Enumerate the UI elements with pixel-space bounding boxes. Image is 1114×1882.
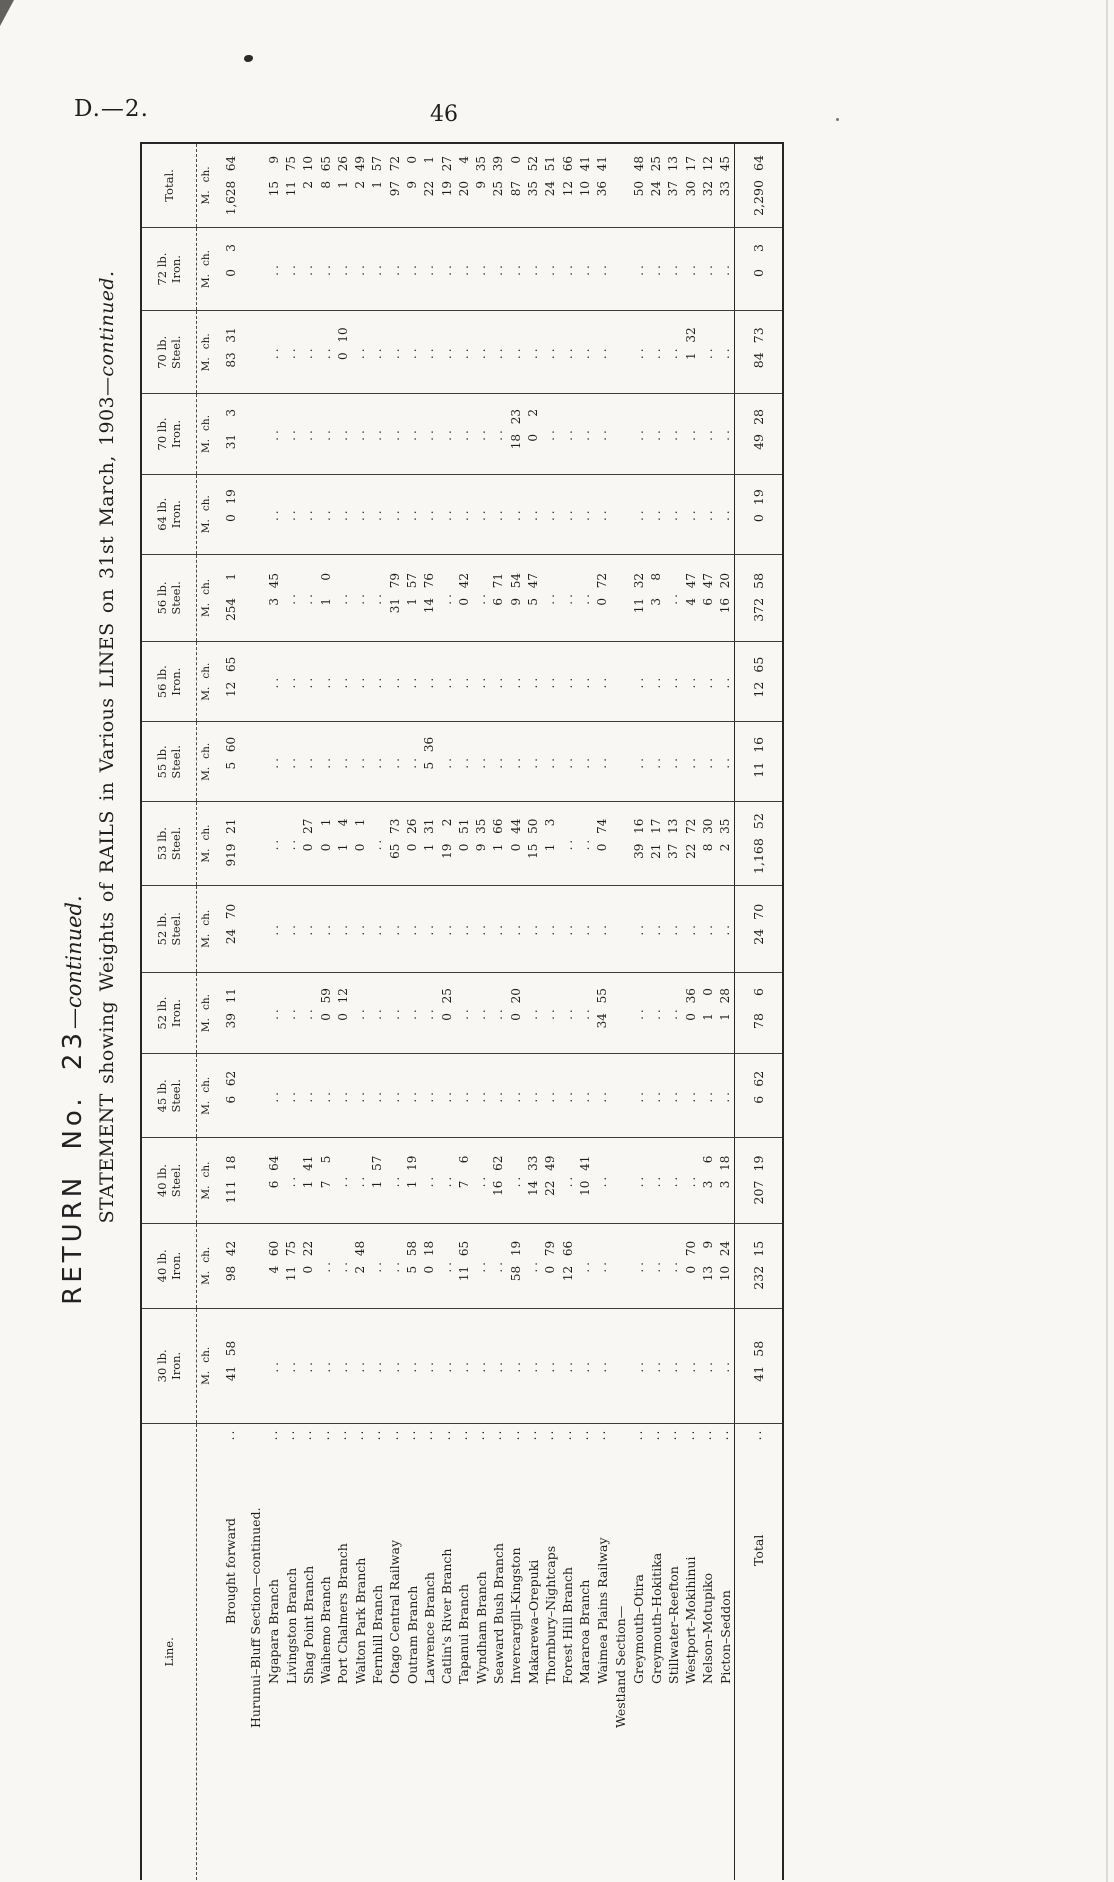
scan-corner-artifact bbox=[0, 0, 14, 26]
dot-leader: .. bbox=[577, 1429, 591, 1441]
mileage-value: 044 bbox=[509, 819, 523, 869]
weight-value-cell: .. bbox=[717, 885, 735, 972]
total-value-cell: 204 bbox=[455, 143, 472, 227]
chains-value: 76 bbox=[422, 573, 436, 589]
chains-value: 71 bbox=[491, 573, 505, 589]
miles-value: 0 bbox=[405, 844, 419, 869]
mileage-value: .. bbox=[353, 922, 367, 936]
mileage-value: .. bbox=[474, 1259, 488, 1273]
mileage-value: .. bbox=[666, 591, 680, 605]
weight-value-cell: .. bbox=[665, 642, 682, 722]
weight-value-cell: .. bbox=[403, 1308, 420, 1423]
miles-value: 1 bbox=[405, 598, 419, 623]
return-title: RETURN No. 23—continued. bbox=[58, 800, 100, 1400]
weight-value-cell: 1265 bbox=[215, 642, 246, 722]
mileage-value: .. bbox=[666, 675, 680, 689]
miles-value: 24 bbox=[224, 929, 238, 954]
line-name: Fernhill Branch bbox=[370, 1585, 385, 1684]
weight-value-cell: 2249 bbox=[542, 1138, 559, 1223]
chains-value: 65 bbox=[457, 1241, 471, 1257]
units-label: M.ch. bbox=[200, 1247, 212, 1285]
mileage-value: .. bbox=[336, 755, 350, 769]
weight-value-cell: 079 bbox=[542, 1223, 559, 1308]
miles-value: 25 bbox=[491, 181, 505, 215]
mileage-value: .. bbox=[336, 427, 350, 441]
weight-value-cell: 14 bbox=[334, 802, 351, 885]
weight-value-cell: .. bbox=[665, 394, 682, 474]
mileage-value: .. bbox=[301, 755, 315, 769]
mileage-value: .. bbox=[457, 427, 471, 441]
weight-value-cell: 027 bbox=[300, 802, 317, 885]
weight-value-cell: .. bbox=[438, 885, 455, 972]
total-value-cell: 2451 bbox=[542, 143, 559, 227]
chains-value: 0 bbox=[319, 573, 333, 589]
weight-value-cell: .. bbox=[542, 474, 559, 554]
chains-value: 72 bbox=[684, 819, 698, 835]
chains-value: 55 bbox=[595, 988, 609, 1004]
weight-value-cell: 547 bbox=[524, 554, 541, 641]
weight-value-cell: .. bbox=[699, 227, 716, 310]
material-label: Steel. bbox=[169, 311, 183, 393]
weight-value-cell: .. bbox=[542, 642, 559, 722]
mileage-value: .. bbox=[649, 675, 663, 689]
material-label: Iron. bbox=[169, 1309, 183, 1423]
miles-value: 31 bbox=[224, 434, 238, 459]
mileage-value: 1550 bbox=[526, 819, 540, 869]
weight-value-cell: 026 bbox=[403, 802, 420, 885]
empty-cell bbox=[246, 722, 265, 802]
mileage-value: .. bbox=[509, 507, 523, 521]
empty-cell bbox=[246, 394, 265, 474]
units-label: M.ch. bbox=[200, 1347, 212, 1385]
weight-value-cell: 3455 bbox=[594, 972, 611, 1053]
weight-value-cell: .. bbox=[421, 885, 438, 972]
chains-value: 47 bbox=[684, 573, 698, 589]
weight-value-cell: 128 bbox=[717, 972, 735, 1053]
weight-value-cell: .. bbox=[473, 722, 490, 802]
miles-value: 3 bbox=[701, 1181, 715, 1206]
total-value-cell: 1266 bbox=[559, 143, 576, 227]
chains-value: 47 bbox=[526, 573, 540, 589]
chains-value: 18 bbox=[224, 1156, 238, 1172]
mileage-value: .. bbox=[561, 1174, 575, 1188]
mileage-value: 3552 bbox=[526, 156, 540, 215]
mileage-value: 954 bbox=[509, 573, 523, 623]
weight-value-cell: .. bbox=[647, 1223, 664, 1308]
rails-table-rotated-block: Line.30 lb.Iron.40 lb.Iron.40 lb.Steel.4… bbox=[140, 142, 784, 1880]
chains-value: 59 bbox=[319, 988, 333, 1004]
weight-value-cell: .. bbox=[524, 1308, 541, 1423]
weight-value-cell: .. bbox=[576, 972, 593, 1053]
weight-value-cell: .. bbox=[507, 1138, 524, 1223]
unit-miles: M. bbox=[200, 849, 212, 863]
weight-value-cell: 345 bbox=[265, 554, 282, 641]
chains-value: 16 bbox=[632, 819, 646, 835]
weight-value-cell: .. bbox=[282, 394, 299, 474]
weight-value-cell: .. bbox=[490, 1223, 507, 1308]
weight-value-cell: .. bbox=[490, 227, 507, 310]
weight-value-cell: 166 bbox=[490, 802, 507, 885]
mileage-value: .. bbox=[649, 345, 663, 359]
miles-value: 1,168 bbox=[751, 838, 766, 874]
weight-value-cell: 786 bbox=[734, 972, 783, 1053]
mileage-value: 3017 bbox=[684, 156, 698, 215]
weight-value-cell: .. bbox=[317, 722, 334, 802]
mileage-value: .. bbox=[301, 591, 315, 605]
mileage-value: .. bbox=[595, 1259, 609, 1273]
weight-value-cell: .. bbox=[665, 1308, 682, 1423]
miles-value: 2 bbox=[353, 1266, 367, 1291]
units-cell: M.ch. bbox=[197, 642, 216, 722]
mileage-value: .. bbox=[632, 427, 646, 441]
mileage-value: .. bbox=[301, 427, 315, 441]
mileage-value: .. bbox=[353, 1006, 367, 1020]
mileage-value: .. bbox=[284, 591, 298, 605]
mileage-value: .. bbox=[649, 755, 663, 769]
mileage-value: .. bbox=[370, 755, 384, 769]
line-name-cell: Stillwater–Reefton.. bbox=[665, 1423, 682, 1880]
weight-value-cell: 4928 bbox=[734, 394, 783, 474]
mileage-value: 036 bbox=[684, 988, 698, 1038]
weight-column-header: 30 lb.Iron. bbox=[141, 1308, 197, 1423]
miles-value: 19 bbox=[440, 844, 454, 869]
weight-value-cell: .. bbox=[438, 394, 455, 474]
weight-value-cell: 536 bbox=[421, 722, 438, 802]
scanned-document-page: { "page": { "doc_ref": "D.—2.", "page_nu… bbox=[0, 0, 1114, 1882]
table-row: Ngapara Branch....460664............345.… bbox=[265, 143, 282, 1880]
dot-leader: .. bbox=[421, 1429, 435, 1441]
mileage-value: .. bbox=[526, 1006, 540, 1020]
mileage-value: 3713 bbox=[666, 819, 680, 869]
mileage-value: 248 bbox=[353, 1241, 367, 1291]
mileage-value: 01 bbox=[353, 819, 367, 869]
miles-value: 3 bbox=[267, 598, 281, 623]
units-cell: M.ch. bbox=[197, 1054, 216, 1138]
mileage-value: .. bbox=[684, 1089, 698, 1103]
line-name: Livingston Branch bbox=[284, 1568, 299, 1684]
empty-cell bbox=[246, 1138, 265, 1223]
mileage-value: .. bbox=[370, 1006, 384, 1020]
units-label: M.ch. bbox=[200, 333, 212, 371]
return-title-main: RETURN No. 23 bbox=[58, 1029, 88, 1305]
weight-value-cell: .. bbox=[421, 311, 438, 394]
units-label: M.ch. bbox=[200, 1077, 212, 1115]
mileage-value: .. bbox=[632, 675, 646, 689]
mileage-value: .. bbox=[491, 507, 505, 521]
chains-value: 18 bbox=[718, 1156, 732, 1172]
chains-value: 65 bbox=[319, 156, 333, 172]
weight-label: 55 lb. bbox=[155, 722, 169, 801]
weight-value-cell: .. bbox=[647, 885, 664, 972]
mileage-value: .. bbox=[370, 837, 384, 851]
miles-value: 0 bbox=[595, 598, 609, 623]
line-name: Ngapara Branch bbox=[266, 1579, 281, 1684]
mileage-value: .. bbox=[440, 922, 454, 936]
weight-value-cell: 235 bbox=[717, 802, 735, 885]
chains-value: 36 bbox=[422, 737, 436, 753]
mileage-value: .. bbox=[267, 262, 281, 276]
document-reference: D.—2. bbox=[74, 96, 149, 122]
chains-value: 64 bbox=[224, 156, 238, 172]
mileage-value: .. bbox=[718, 755, 732, 769]
mileage-value: .. bbox=[509, 1174, 523, 1188]
mileage-value: 03 bbox=[224, 244, 238, 294]
mileage-value: 547 bbox=[526, 573, 540, 623]
weight-value-cell: 02 bbox=[524, 394, 541, 474]
weight-value-cell: .. bbox=[403, 474, 420, 554]
chains-value: 0 bbox=[509, 156, 523, 172]
empty-cell bbox=[246, 311, 265, 394]
dot-leader: .. bbox=[266, 1429, 280, 1441]
mileage-value: .. bbox=[440, 427, 454, 441]
weight-value-cell: .. bbox=[403, 1054, 420, 1138]
weight-value-cell: .. bbox=[438, 1138, 455, 1223]
weight-label: 40 lb. bbox=[155, 1224, 169, 1308]
weight-value-cell: .. bbox=[386, 1054, 403, 1138]
dot-leader: .. bbox=[542, 1429, 556, 1441]
mileage-value: .. bbox=[578, 837, 592, 851]
weight-value-cell: 2470 bbox=[734, 885, 783, 972]
weight-value-cell: .. bbox=[369, 972, 386, 1053]
mileage-value: 1041 bbox=[578, 1156, 592, 1206]
weight-value-cell: .. bbox=[265, 1308, 282, 1423]
chains-value: 41 bbox=[578, 1156, 592, 1172]
mileage-value: .. bbox=[595, 1174, 609, 1188]
miles-value: 1 bbox=[319, 598, 333, 623]
weight-value-cell: 1550 bbox=[524, 802, 541, 885]
mileage-value: .. bbox=[632, 262, 646, 276]
weight-value-cell: .. bbox=[369, 474, 386, 554]
scan-speck-artifact bbox=[836, 118, 839, 121]
miles-value: 0 bbox=[457, 844, 471, 869]
chains-value: 60 bbox=[267, 1241, 281, 1257]
mileage-value: .. bbox=[422, 345, 436, 359]
weight-value-cell: .. bbox=[282, 227, 299, 310]
chains-value: 4 bbox=[457, 156, 471, 172]
mileage-value: .. bbox=[457, 922, 471, 936]
chains-value: 57 bbox=[405, 573, 419, 589]
weight-value-cell: 010 bbox=[334, 311, 351, 394]
mileage-value: .. bbox=[595, 427, 609, 441]
line-name-cell: Fernhill Branch.. bbox=[369, 1423, 386, 1880]
weight-value-cell: .. bbox=[665, 972, 682, 1053]
weight-value-cell: .. bbox=[699, 394, 716, 474]
units-blank-cell bbox=[197, 1423, 216, 1880]
weight-value-cell: .. bbox=[524, 642, 541, 722]
mileage-value: .. bbox=[701, 675, 715, 689]
mileage-value: .. bbox=[474, 675, 488, 689]
weight-value-cell: .. bbox=[699, 1308, 716, 1423]
miles-value: 12 bbox=[561, 181, 575, 215]
weight-value-cell: .. bbox=[594, 1054, 611, 1138]
chains-value: 12 bbox=[701, 156, 715, 172]
miles-value: 207 bbox=[751, 1181, 766, 1206]
mileage-value: .. bbox=[336, 1089, 350, 1103]
miles-value: 1 bbox=[422, 844, 436, 869]
mileage-value: 662 bbox=[224, 1071, 238, 1121]
chains-value: 70 bbox=[751, 904, 766, 920]
mileage-value: 1265 bbox=[224, 657, 238, 707]
table-row: Greymouth–Otira..............3916....113… bbox=[630, 143, 647, 1880]
weight-value-cell: 20719 bbox=[734, 1138, 783, 1223]
weight-value-cell: .. bbox=[265, 394, 282, 474]
empty-cell bbox=[611, 972, 630, 1053]
chains-value: 32 bbox=[632, 573, 646, 589]
mileage-value: .. bbox=[284, 262, 298, 276]
miles-value: 5 bbox=[224, 762, 238, 787]
material-label: Iron. bbox=[169, 1224, 183, 1308]
chains-value: 64 bbox=[751, 155, 766, 171]
weight-value-cell: 022 bbox=[300, 1223, 317, 1308]
weight-value-cell: .. bbox=[594, 474, 611, 554]
line-name-cell: Ngapara Branch.. bbox=[265, 1423, 282, 1880]
unit-chains: ch. bbox=[200, 250, 212, 266]
weight-value-cell: 1132 bbox=[630, 554, 647, 641]
miles-value: 32 bbox=[701, 181, 715, 215]
weight-value-cell: .. bbox=[559, 1308, 576, 1423]
mileage-value: 157 bbox=[370, 1156, 384, 1206]
weight-column-header: 40 lb.Iron. bbox=[141, 1223, 197, 1308]
chains-value: 49 bbox=[353, 156, 367, 172]
line-name: Port Chalmers Branch bbox=[335, 1543, 350, 1684]
mileage-value: 022 bbox=[301, 1241, 315, 1291]
miles-value: 111 bbox=[224, 1181, 238, 1206]
unit-chains: ch. bbox=[200, 825, 212, 841]
mileage-value: .. bbox=[405, 1089, 419, 1103]
mileage-value: .. bbox=[319, 345, 333, 359]
weight-value-cell: .. bbox=[455, 227, 472, 310]
mileage-value: 026 bbox=[405, 819, 419, 869]
mileage-value: .. bbox=[422, 262, 436, 276]
weight-value-cell: .. bbox=[594, 394, 611, 474]
chains-value: 58 bbox=[405, 1241, 419, 1257]
weight-value-cell: 647 bbox=[699, 554, 716, 641]
mileage-value: 1024 bbox=[718, 1241, 732, 1291]
mileage-value: .. bbox=[422, 675, 436, 689]
weight-value-cell: .. bbox=[403, 394, 420, 474]
weight-column-header: 64 lb.Iron. bbox=[141, 474, 197, 554]
line-name-cell: Walton Park Branch.. bbox=[352, 1423, 369, 1880]
mileage-value: .. bbox=[440, 1359, 454, 1373]
mileage-value: 1662 bbox=[491, 1156, 505, 1206]
weight-value-cell: 139 bbox=[699, 1223, 716, 1308]
total-value-cell: 3552 bbox=[524, 143, 541, 227]
line-name-cell: Mararoa Branch.. bbox=[576, 1423, 593, 1880]
miles-value: 6 bbox=[267, 1181, 281, 1206]
weight-value-cell: .. bbox=[524, 227, 541, 310]
miles-value: 21 bbox=[649, 844, 663, 869]
mileage-value: 051 bbox=[457, 819, 471, 869]
mileage-value: .. bbox=[491, 1089, 505, 1103]
mileage-value: .. bbox=[388, 1006, 402, 1020]
miles-value: 15 bbox=[526, 844, 540, 869]
weight-value-cell: 460 bbox=[265, 1223, 282, 1308]
mileage-value: .. bbox=[353, 755, 367, 769]
table-row: Thornbury–Nightcaps....0792249......13..… bbox=[542, 143, 559, 1880]
miles-value: 11 bbox=[632, 598, 646, 623]
mileage-value: 11118 bbox=[224, 1156, 238, 1206]
unit-miles: M. bbox=[200, 274, 212, 288]
weight-value-cell: 3911 bbox=[215, 972, 246, 1053]
miles-value: 1 bbox=[336, 181, 350, 215]
dot-leader: .. bbox=[438, 1429, 452, 1441]
weight-value-cell: .. bbox=[282, 1308, 299, 1423]
empty-cell bbox=[246, 885, 265, 972]
weight-value-cell: .. bbox=[386, 885, 403, 972]
mileage-value: .. bbox=[353, 427, 367, 441]
weight-value-cell: .. bbox=[265, 802, 282, 885]
weight-label: 40 lb. bbox=[155, 1138, 169, 1222]
weight-value-cell: .. bbox=[647, 1054, 664, 1138]
mileage-value: .. bbox=[491, 755, 505, 769]
mileage-value: 2470 bbox=[751, 904, 766, 954]
mileage-value: 2425 bbox=[649, 156, 663, 215]
miles-value: 1 bbox=[718, 1013, 732, 1038]
miles-value: 1,628 bbox=[224, 181, 238, 215]
total-value-cell: 157 bbox=[369, 143, 386, 227]
weight-value-cell: 01 bbox=[352, 802, 369, 885]
mileage-value: .. bbox=[526, 507, 540, 521]
mileage-value: .. bbox=[718, 1089, 732, 1103]
dot-leader: .. bbox=[352, 1429, 366, 1441]
line-name-cell: Makarewa–Orepuki.. bbox=[524, 1423, 541, 1880]
total-value-cell: 3345 bbox=[717, 143, 735, 227]
chains-value: 75 bbox=[284, 156, 298, 172]
unit-chains: ch. bbox=[200, 1247, 212, 1263]
weight-value-cell: .. bbox=[490, 474, 507, 554]
weight-value-cell: .. bbox=[682, 394, 699, 474]
chains-value: 70 bbox=[224, 904, 238, 920]
weight-value-cell: .. bbox=[630, 722, 647, 802]
weight-value-cell: .. bbox=[524, 311, 541, 394]
mileage-value: 204 bbox=[457, 156, 471, 215]
mileage-value: .. bbox=[457, 755, 471, 769]
weight-value-cell: .. bbox=[576, 885, 593, 972]
unit-chains: ch. bbox=[200, 743, 212, 759]
weight-value-cell: .. bbox=[473, 642, 490, 722]
mileage-value: 210 bbox=[301, 156, 315, 215]
chains-value: 35 bbox=[474, 156, 488, 172]
line-name-cell: Greymouth–Otira.. bbox=[630, 1423, 647, 1880]
mileage-value: .. bbox=[422, 507, 436, 521]
weight-value-cell: .. bbox=[438, 1308, 455, 1423]
chains-value: 49 bbox=[543, 1156, 557, 1172]
weight-value-cell: .. bbox=[647, 972, 664, 1053]
line-name: Forest Hill Branch bbox=[560, 1567, 575, 1684]
mileage-value: .. bbox=[491, 675, 505, 689]
weight-value-cell: .. bbox=[542, 1308, 559, 1423]
miles-value: 0 bbox=[751, 514, 766, 539]
mileage-value: .. bbox=[388, 755, 402, 769]
weight-value-cell: .. bbox=[559, 972, 576, 1053]
total-value-cell: 1,62864 bbox=[215, 143, 246, 227]
mileage-value: 249 bbox=[353, 156, 367, 215]
mileage-value: .. bbox=[509, 345, 523, 359]
mileage-value: .. bbox=[666, 1259, 680, 1273]
mileage-value: 3713 bbox=[666, 156, 680, 215]
table-row: Stillwater–Reefton..............3713....… bbox=[665, 143, 682, 1880]
chains-value: 62 bbox=[491, 1156, 505, 1172]
weight-column-header: 70 lb.Iron. bbox=[141, 394, 197, 474]
chains-value: 9 bbox=[701, 1241, 715, 1257]
mileage-value: .. bbox=[649, 1006, 663, 1020]
mileage-value: 14 bbox=[336, 819, 350, 869]
chains-value: 3 bbox=[224, 409, 238, 425]
mileage-value: .. bbox=[267, 507, 281, 521]
weight-value-cell: .. bbox=[300, 394, 317, 474]
line-name: Westport–Mokihinui bbox=[683, 1557, 698, 1684]
weight-value-cell: .. bbox=[369, 311, 386, 394]
